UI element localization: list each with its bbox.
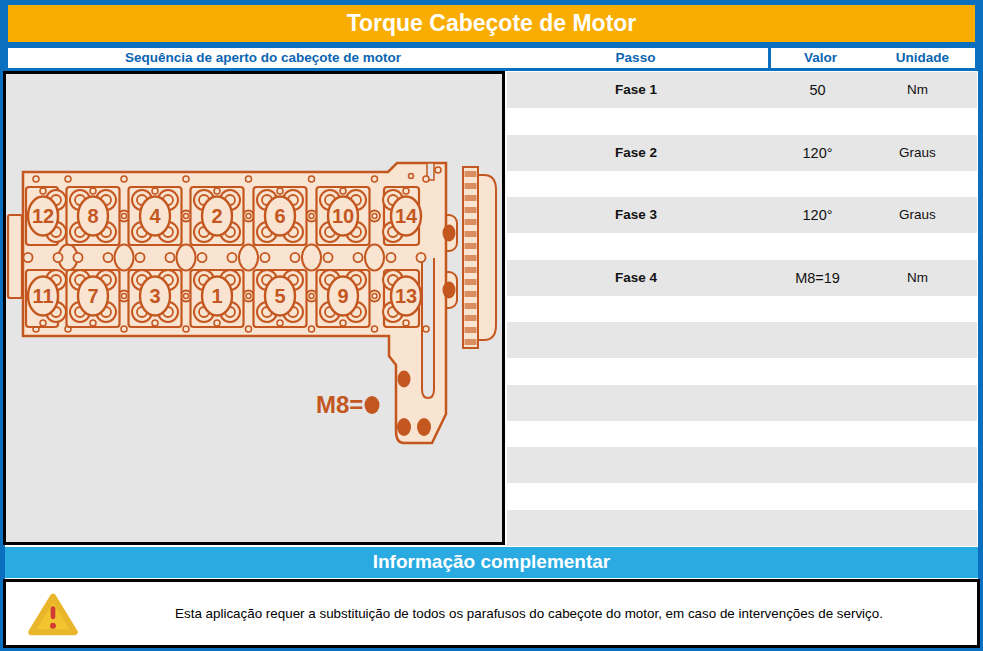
svg-text:9: 9 (337, 285, 348, 307)
info-bar-title: Informação complementar (5, 547, 978, 578)
svg-text:1: 1 (211, 285, 222, 307)
table-header: Sequência de aperto do cabeçote de motor… (8, 48, 975, 68)
cell-unidade: Nm (865, 72, 970, 108)
svg-text:7: 7 (87, 285, 98, 307)
cell-passo: Fase 1 (507, 72, 765, 108)
header-unidade: Unidade (870, 48, 975, 68)
warning-triangle-icon (27, 591, 79, 637)
warning-box: Esta aplicação requer a substituição de … (3, 579, 980, 648)
svg-text:13: 13 (395, 285, 417, 307)
header-valor: Valor (771, 48, 870, 68)
header-sequence-label: Sequência de aperto do cabeçote de motor (8, 48, 518, 68)
engine-head-svg: 1284261014117315913M8= (6, 74, 502, 542)
cell-valor: 120° (765, 135, 870, 171)
table-row: Fase 3120°Graus (507, 197, 977, 233)
table-row-empty (507, 510, 977, 546)
svg-text:2: 2 (211, 205, 222, 227)
cell-passo: Fase 3 (507, 197, 765, 233)
torque-table: Fase 150NmFase 2120°GrausFase 3120°Graus… (507, 71, 977, 547)
svg-text:3: 3 (149, 285, 160, 307)
warning-text: Esta aplicação requer a substituição de … (91, 582, 967, 645)
svg-text:14: 14 (395, 205, 418, 227)
cell-passo: Fase 4 (507, 260, 765, 296)
cell-unidade: Nm (865, 260, 970, 296)
page-title: Torque Cabeçote de Motor (8, 5, 975, 42)
svg-text:10: 10 (332, 205, 354, 227)
table-row: Fase 150Nm (507, 72, 977, 108)
svg-text:8: 8 (87, 205, 98, 227)
table-row: Fase 4M8=19Nm (507, 260, 977, 296)
table-row-empty (507, 385, 977, 421)
cylinder-head-diagram: 1284261014117315913M8= (3, 71, 505, 545)
svg-text:11: 11 (32, 285, 53, 307)
header-passo: Passo (503, 48, 768, 68)
cell-unidade: Graus (865, 197, 970, 233)
torque-screen: Torque Cabeçote de Motor Sequência de ap… (0, 0, 983, 651)
cell-unidade: Graus (865, 135, 970, 171)
cell-passo: Fase 2 (507, 135, 765, 171)
table-row-empty (507, 322, 977, 358)
svg-text:12: 12 (32, 205, 54, 227)
table-row-empty (507, 447, 977, 483)
svg-text:4: 4 (149, 205, 161, 227)
cell-valor: 120° (765, 197, 870, 233)
svg-text:5: 5 (274, 285, 285, 307)
svg-text:M8=: M8= (316, 391, 363, 418)
cell-valor: 50 (765, 72, 870, 108)
table-row: Fase 2120°Graus (507, 135, 977, 171)
right-frame (978, 0, 983, 651)
svg-text:6: 6 (274, 205, 285, 227)
cell-valor: M8=19 (765, 260, 870, 296)
